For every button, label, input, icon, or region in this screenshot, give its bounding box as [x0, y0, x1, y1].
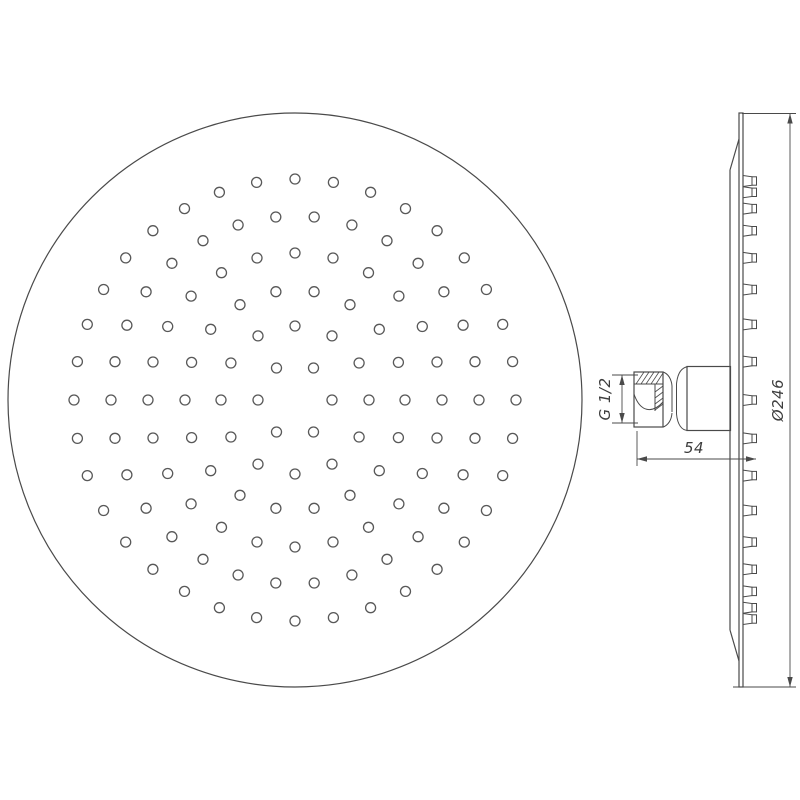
nozzle-hole	[272, 427, 282, 437]
nozzle-hole	[481, 285, 491, 295]
nozzle-hole	[198, 554, 208, 564]
nozzle-hole	[470, 357, 480, 367]
nozzle-profile	[743, 187, 752, 198]
nozzle-hole	[216, 395, 226, 405]
hatch-line	[646, 372, 654, 384]
nozzle-hole	[290, 248, 300, 258]
thread-hatching	[636, 372, 663, 410]
nozzle-profile	[743, 203, 752, 214]
nozzle-profile	[743, 602, 752, 613]
nozzle-hole	[271, 503, 281, 513]
nozzle-hole	[252, 177, 262, 187]
connector-cylinder	[687, 367, 731, 431]
nozzle-hole	[110, 357, 120, 367]
side-view-nozzles	[743, 176, 757, 625]
side-view-profile	[634, 113, 757, 687]
nozzle-hole	[217, 522, 227, 532]
hatch-line	[655, 404, 663, 410]
nozzle-hole	[511, 395, 521, 405]
nozzle-hole	[345, 490, 355, 500]
nozzle-hole	[110, 433, 120, 443]
nozzle-hole	[206, 466, 216, 476]
nozzle-profile	[743, 505, 752, 516]
nozzle-hole	[364, 522, 374, 532]
nozzle-hole	[400, 395, 410, 405]
nozzle-hole	[69, 395, 79, 405]
dim-thread-label: G 1/2	[596, 377, 614, 420]
nozzle-hole	[327, 395, 337, 405]
hatch-line	[651, 372, 659, 384]
nozzle-hole	[328, 253, 338, 263]
nozzle-hole	[121, 537, 131, 547]
hatch-line	[655, 386, 663, 392]
nozzle-hole	[437, 395, 447, 405]
nozzle-tip-cap	[752, 357, 757, 365]
nozzle-profile	[743, 564, 752, 575]
back-shell-profile	[730, 139, 739, 661]
nozzle-hole	[327, 459, 337, 469]
nozzle-hole	[148, 226, 158, 236]
nozzle-hole	[309, 578, 319, 588]
nozzle-hole	[394, 499, 404, 509]
nozzle-hole	[214, 603, 224, 613]
nozzle-hole	[364, 395, 374, 405]
nozzle-tip-cap	[752, 396, 757, 404]
nozzle-hole	[498, 319, 508, 329]
nozzle-hole	[121, 253, 131, 263]
nozzle-profile	[743, 284, 752, 295]
nozzle-profile	[743, 537, 752, 548]
nozzle-tip-cap	[752, 285, 757, 293]
nozzle-hole	[439, 287, 449, 297]
nozzle-hole	[122, 470, 132, 480]
nozzle-hole	[143, 395, 153, 405]
nozzle-hole	[432, 564, 442, 574]
nozzle-hole	[470, 433, 480, 443]
nozzle-hole	[290, 174, 300, 184]
nozzle-hole	[82, 471, 92, 481]
nozzle-hole	[417, 469, 427, 479]
nozzle-tip-cap	[752, 471, 757, 479]
nozzle-hole	[458, 320, 468, 330]
dimension-arrowhead	[619, 375, 624, 385]
nozzle-hole	[417, 322, 427, 332]
nozzle-profile	[743, 586, 752, 597]
nozzle-hole	[382, 554, 392, 564]
nozzle-hole	[459, 537, 469, 547]
nozzle-hole	[214, 187, 224, 197]
nozzle-tip-cap	[752, 254, 757, 262]
nozzle-profile	[743, 319, 752, 330]
nozzle-hole	[508, 433, 518, 443]
nozzle-hole	[141, 503, 151, 513]
nozzle-hole	[271, 287, 281, 297]
nozzle-hole	[309, 363, 319, 373]
nozzle-hole	[180, 204, 190, 214]
nozzle-hole	[106, 395, 116, 405]
nozzle-hole	[226, 358, 236, 368]
nozzle-hole	[122, 320, 132, 330]
nozzle-hole	[233, 220, 243, 230]
nozzle-hole	[235, 300, 245, 310]
nozzle-hole	[180, 586, 190, 596]
nozzle-hole	[366, 187, 376, 197]
nozzle-hole	[382, 236, 392, 246]
hatch-line	[636, 372, 644, 384]
nozzle-hole	[180, 395, 190, 405]
nozzle-hole	[148, 357, 158, 367]
nozzle-hole	[498, 471, 508, 481]
dim-diameter-label: Ø246	[769, 379, 787, 422]
nozzle-hole	[432, 357, 442, 367]
nozzle-hole	[72, 357, 82, 367]
nozzle-hole	[327, 331, 337, 341]
nozzle-tip-cap	[752, 565, 757, 573]
nozzle-hole	[187, 357, 197, 367]
nozzle-hole-pattern	[69, 174, 521, 626]
nozzle-hole	[167, 258, 177, 268]
dimension-thread: G 1/2	[596, 375, 638, 423]
nozzle-tip-cap	[752, 177, 757, 185]
nozzle-hole	[141, 287, 151, 297]
technical-drawing-canvas: G 1/2 54 Ø246	[0, 0, 800, 800]
nozzle-hole	[394, 291, 404, 301]
nozzle-tip-cap	[752, 227, 757, 235]
nozzle-hole	[235, 490, 245, 500]
nozzle-hole	[253, 395, 263, 405]
nozzle-hole	[364, 268, 374, 278]
nozzle-hole	[432, 226, 442, 236]
nozzle-hole	[393, 357, 403, 367]
nozzle-hole	[309, 212, 319, 222]
nozzle-tip-cap	[752, 604, 757, 612]
nozzle-hole	[459, 253, 469, 263]
face-plate-edge	[739, 113, 743, 687]
nozzle-hole	[187, 433, 197, 443]
nozzle-profile	[743, 395, 752, 406]
nozzle-profile	[743, 356, 752, 367]
nozzle-hole	[271, 212, 281, 222]
nozzle-hole	[508, 357, 518, 367]
nozzle-profile	[743, 176, 752, 187]
nozzle-hole	[413, 532, 423, 542]
nozzle-hole	[290, 469, 300, 479]
nozzle-hole	[99, 506, 109, 516]
nozzle-hole	[163, 469, 173, 479]
nozzle-hole	[72, 433, 82, 443]
dimension-arrowheads	[619, 114, 792, 688]
nozzle-hole	[148, 564, 158, 574]
nozzle-hole	[252, 613, 262, 623]
hatch-line	[655, 392, 663, 398]
nozzle-profile	[743, 470, 752, 481]
nozzle-hole	[271, 578, 281, 588]
connector-waist-profile	[663, 367, 688, 431]
nozzle-tip-cap	[752, 538, 757, 546]
nozzle-hole	[167, 532, 177, 542]
nozzle-hole	[347, 220, 357, 230]
nozzle-hole	[374, 324, 384, 334]
nozzle-hole	[253, 459, 263, 469]
nozzle-hole	[439, 503, 449, 513]
nozzle-hole	[252, 253, 262, 263]
nozzle-hole	[290, 542, 300, 552]
nozzle-hole	[345, 300, 355, 310]
nozzle-hole	[252, 537, 262, 547]
nozzle-hole	[290, 321, 300, 331]
nozzle-hole	[354, 358, 364, 368]
nozzle-tip-cap	[752, 320, 757, 328]
nozzle-hole	[366, 603, 376, 613]
nozzle-tip-cap	[752, 615, 757, 623]
nozzle-hole	[374, 466, 384, 476]
nozzle-hole	[163, 322, 173, 332]
dimension-depth: 54	[637, 431, 756, 466]
nozzle-hole	[328, 177, 338, 187]
nozzle-hole	[393, 433, 403, 443]
nozzle-hole	[328, 537, 338, 547]
nozzle-hole	[198, 236, 208, 246]
nozzle-hole	[413, 258, 423, 268]
drawing-svg: G 1/2 54 Ø246	[0, 0, 800, 800]
nozzle-profile	[743, 225, 752, 236]
nozzle-hole	[290, 616, 300, 626]
nozzle-tip-cap	[752, 204, 757, 212]
nozzle-tip-cap	[752, 188, 757, 196]
dimension-arrowhead	[637, 456, 647, 461]
nozzle-profile	[743, 433, 752, 444]
nozzle-hole	[458, 470, 468, 480]
nozzle-profile	[743, 252, 752, 263]
nozzle-hole	[481, 506, 491, 516]
shower-face-outline	[8, 113, 582, 687]
nozzle-profile	[743, 614, 752, 625]
nozzle-hole	[309, 427, 319, 437]
nozzle-tip-cap	[752, 506, 757, 514]
nozzle-tip-cap	[752, 434, 757, 442]
dim-depth-label: 54	[684, 439, 704, 457]
nozzle-hole	[253, 331, 263, 341]
nozzle-hole	[217, 268, 227, 278]
nozzle-hole	[148, 433, 158, 443]
nozzle-hole	[474, 395, 484, 405]
nozzle-hole	[347, 570, 357, 580]
nozzle-hole	[226, 432, 236, 442]
nozzle-hole	[401, 586, 411, 596]
nozzle-hole	[186, 499, 196, 509]
dimension-arrowhead	[787, 677, 792, 687]
nozzle-hole	[328, 613, 338, 623]
nozzle-hole	[309, 287, 319, 297]
dimension-arrowhead	[787, 114, 792, 124]
dimension-arrowhead	[619, 413, 624, 423]
nozzle-hole	[186, 291, 196, 301]
hatch-line	[641, 372, 649, 384]
nozzle-hole	[206, 324, 216, 334]
nozzle-hole	[233, 570, 243, 580]
nozzle-hole	[401, 204, 411, 214]
nozzle-hole	[272, 363, 282, 373]
nozzle-hole	[309, 503, 319, 513]
nozzle-tip-cap	[752, 587, 757, 595]
dimension-arrowhead	[746, 456, 756, 461]
front-view-shower-face	[8, 113, 582, 687]
nozzle-hole	[99, 285, 109, 295]
nozzle-hole	[82, 319, 92, 329]
nozzle-hole	[354, 432, 364, 442]
nozzle-hole	[432, 433, 442, 443]
